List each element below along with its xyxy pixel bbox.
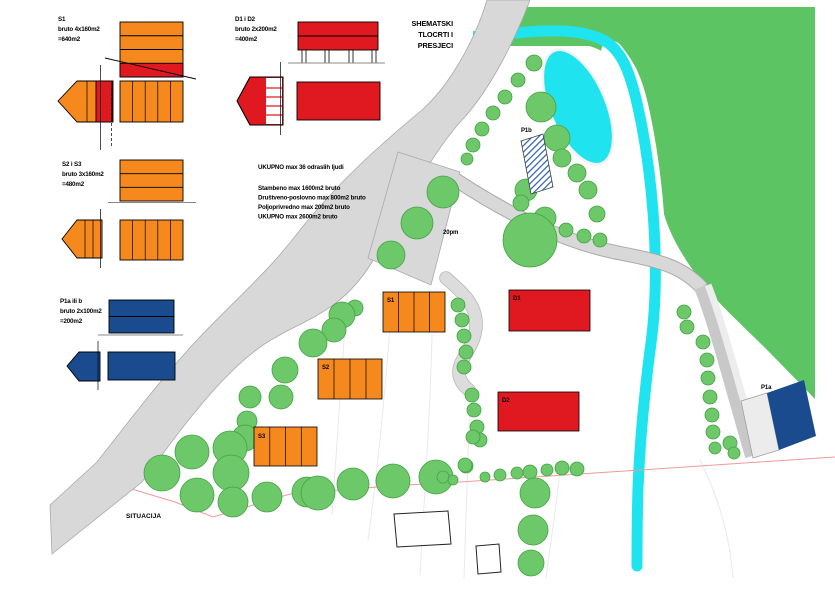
tree	[503, 213, 557, 267]
program-line-2: Stambeno max 1600m2 bruto	[258, 185, 341, 192]
label-s3: S3	[258, 434, 266, 440]
tree	[218, 487, 248, 517]
program-line-3: Društveno-poslovno max 800m2 bruto	[258, 195, 366, 202]
label-p1a: P1a	[761, 385, 772, 391]
tree	[513, 195, 529, 211]
legend-s23-area: bruto 3x160m2	[62, 171, 104, 178]
tree	[175, 435, 209, 469]
program-line-1: UKUPNO max 36 odraslih ljudi	[258, 164, 344, 171]
s1-section-red-bay	[96, 81, 112, 122]
tree	[709, 442, 721, 454]
map-caption: SITUACIJA	[126, 513, 161, 520]
legend-d: D1 i D2 bruto 2x200m2 =400m2	[235, 16, 385, 135]
legend-p-name: P1a ili b	[60, 298, 82, 305]
tree	[498, 90, 512, 104]
legend-d-area: bruto 2x200m2	[235, 26, 277, 33]
tree	[523, 465, 537, 479]
legend-p-total: =200m2	[60, 318, 83, 325]
tree	[337, 468, 369, 500]
tree	[457, 360, 471, 374]
tree	[526, 55, 542, 71]
d-section-body	[297, 82, 380, 120]
tree	[706, 425, 720, 439]
outline-structure-2	[476, 544, 501, 574]
label-d1: D1	[513, 296, 521, 302]
legend-s1-area: bruto 4x160m2	[58, 26, 100, 33]
tree	[593, 233, 607, 247]
tree	[705, 408, 719, 422]
tree	[577, 229, 591, 243]
s23-plan	[120, 160, 183, 201]
legend-d-total: =400m2	[235, 36, 258, 43]
tree	[455, 313, 469, 327]
tree	[180, 478, 214, 512]
tree	[467, 403, 481, 417]
site-plan-sheet: S1 S2 S3 D1 D2 P1b P1a 20pm SITUACIJA SH…	[0, 0, 835, 590]
tree	[465, 388, 479, 402]
tree	[299, 329, 327, 357]
s1-plan-red-band	[120, 63, 183, 77]
tree	[427, 176, 459, 208]
legend-s1: S1 bruto 4x160m2 =640m2	[58, 16, 196, 150]
tree	[511, 467, 523, 479]
tree	[239, 386, 261, 408]
tree	[457, 329, 471, 343]
tree	[144, 455, 180, 491]
label-s1: S1	[387, 298, 395, 304]
tree	[448, 475, 458, 485]
tree	[269, 385, 293, 409]
title-line-1: SHEMATSKI	[411, 19, 453, 28]
tree	[589, 206, 605, 222]
s23-section-gable	[62, 220, 102, 258]
tree	[437, 471, 449, 483]
tree	[541, 464, 553, 476]
tree	[701, 371, 715, 385]
tree	[486, 106, 500, 120]
p-section-body	[108, 352, 175, 380]
legend-s1-name: S1	[58, 16, 66, 23]
title-line-2: TLOCRTI I	[418, 30, 453, 39]
tree	[703, 390, 717, 404]
tree	[377, 241, 405, 269]
title-line-3: PRESJECI	[418, 41, 453, 50]
legend-s23: S2 i S3 bruto 3x160m2 =480m2	[62, 160, 196, 268]
tree	[568, 164, 586, 182]
tree	[480, 472, 490, 482]
tree	[475, 122, 489, 136]
tree	[526, 92, 556, 122]
tree	[555, 461, 569, 475]
tree	[458, 458, 472, 472]
tree	[696, 335, 710, 349]
tree	[401, 207, 433, 239]
tree	[301, 476, 335, 510]
title-block: SHEMATSKI TLOCRTI I PRESJECI	[411, 19, 453, 50]
program-line-4: Poljoprivredno max 200m2 bruto	[258, 204, 350, 211]
tree	[213, 455, 249, 491]
legend-s23-name: S2 i S3	[62, 161, 82, 168]
label-parking: 20pm	[443, 230, 458, 236]
tree	[376, 464, 410, 498]
tree	[700, 353, 714, 367]
label-s2: S2	[322, 365, 330, 371]
s1-section-body	[120, 81, 183, 122]
tree	[252, 482, 282, 512]
building-d2	[498, 392, 579, 431]
tree	[559, 223, 573, 237]
tree	[466, 138, 480, 152]
tree	[553, 149, 571, 167]
tree	[680, 320, 694, 334]
tree	[677, 305, 691, 319]
tree	[461, 153, 473, 165]
tree	[459, 345, 473, 359]
legend-d-name: D1 i D2	[235, 16, 256, 23]
program-line-5: UKUPNO max 2600m2 bruto	[258, 214, 338, 221]
legend-s23-total: =480m2	[62, 181, 85, 188]
tree	[511, 73, 525, 87]
outline-structure-1	[394, 511, 451, 547]
tree	[518, 515, 548, 545]
p-section-gable	[67, 352, 100, 381]
tree	[570, 462, 584, 476]
tree	[518, 550, 544, 576]
tree	[728, 447, 740, 459]
tree	[466, 430, 480, 444]
legend-s1-total: =640m2	[58, 36, 81, 43]
tree	[451, 298, 465, 312]
tree	[272, 357, 298, 383]
legend-p: P1a ili b bruto 2x100m2 =200m2	[60, 298, 183, 390]
s23-section-body	[120, 220, 183, 260]
tree	[579, 181, 597, 199]
tree	[494, 469, 506, 481]
label-p1b: P1b	[521, 128, 532, 134]
tree	[544, 125, 570, 151]
label-d2: D2	[502, 398, 510, 404]
legend-p-area: bruto 2x100m2	[60, 308, 102, 315]
tree	[520, 478, 550, 508]
building-d1	[509, 290, 590, 331]
